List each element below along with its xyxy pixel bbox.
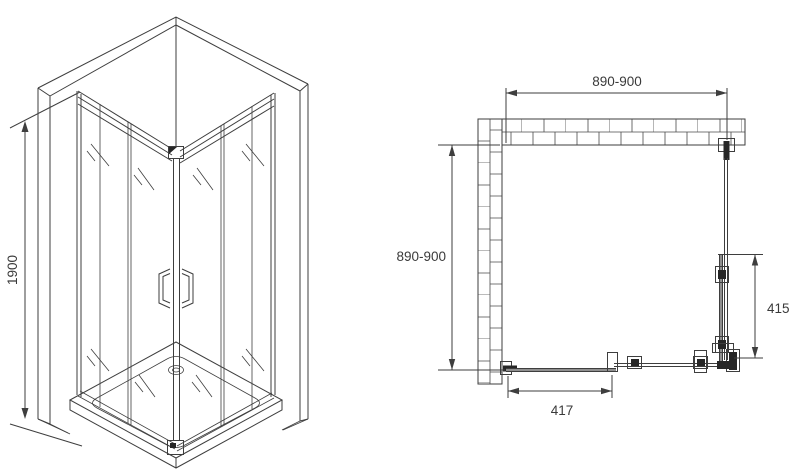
plan-view: 890-900 890-900 415 417 [396, 74, 789, 418]
door-handle-right [182, 269, 193, 308]
drawing-svg: 1900 [0, 0, 800, 476]
dimension-door-bottom: 417 [508, 375, 612, 418]
top-width-dimension-label: 890-900 [592, 74, 642, 89]
plan-walls [478, 119, 745, 384]
left-depth-dimension-label: 890-900 [396, 249, 446, 264]
right-door-dimension-label: 415 [767, 301, 790, 316]
plan-top-wall [478, 119, 745, 145]
glass-panels [87, 104, 264, 427]
dimension-door-right: 415 [724, 255, 790, 359]
plan-glass-right [713, 139, 735, 366]
bottom-door-dimension-label: 417 [551, 403, 574, 418]
door-handle-left [159, 269, 170, 308]
isometric-view: 1900 [5, 17, 308, 468]
roller-right-bottom [694, 351, 708, 373]
dimension-height-1900: 1900 [5, 92, 82, 446]
plan-left-wall [478, 119, 502, 384]
height-dimension-label: 1900 [5, 255, 20, 285]
technical-drawing-shower-enclosure: 1900 [0, 0, 800, 476]
plan-glass-bottom [501, 350, 740, 375]
drain-icon [169, 366, 184, 375]
glass-shine-marks [87, 144, 264, 397]
